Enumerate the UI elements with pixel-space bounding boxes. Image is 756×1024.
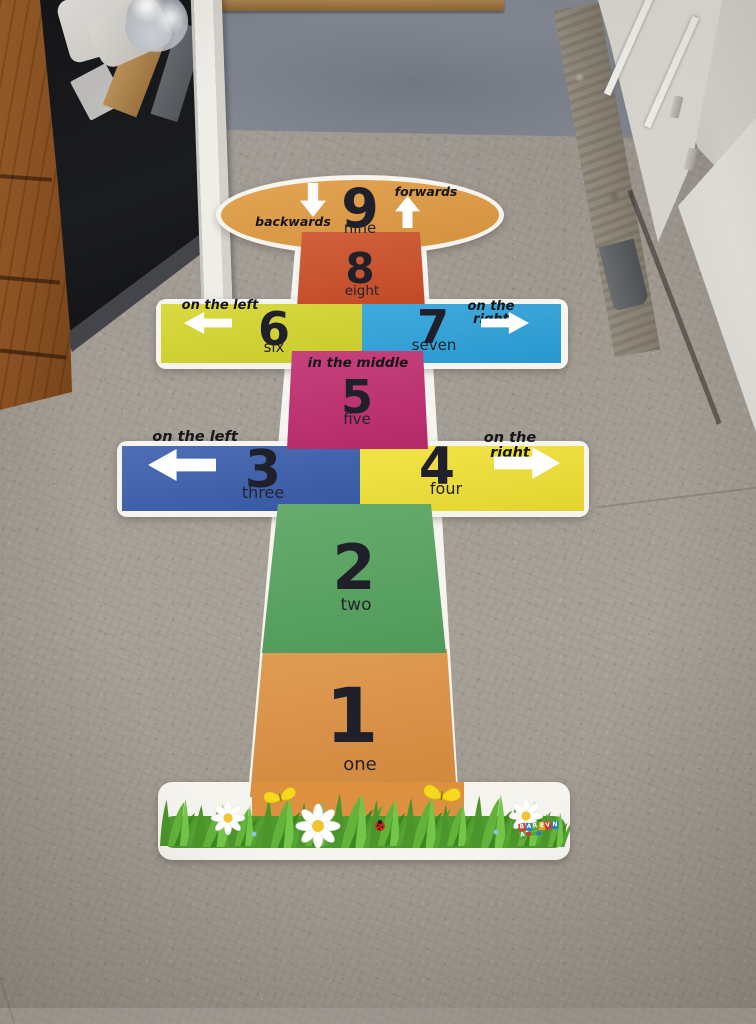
logo-letter: A [519,831,527,840]
daisy-icon [296,804,340,848]
brand-logo: B A R E V N A [518,820,565,839]
logo-letter: N [552,821,559,829]
tile-2-word: two [324,597,388,614]
wood-threshold [204,0,504,11]
daisy-icon [211,801,245,835]
tile-4-word: four [414,481,478,497]
in-the-middle-label: in the middle [304,357,412,371]
blue-flower-icon [252,832,257,837]
tile-8-word: eight [332,285,392,299]
floor-tile-seam [0,832,15,1024]
floor-tile-seam [597,486,756,509]
tile-1-number: 1 [320,678,384,754]
tile-7-word: seven [402,338,466,353]
grass-strip [158,782,570,860]
logo-mini-tile [536,831,541,835]
tile-6-word: six [246,340,302,355]
tile-3-word: three [226,485,300,501]
tile-5-word: five [327,412,387,427]
on-the-left-label: on the left [148,430,242,445]
blue-flower-icon [494,830,499,835]
tile-9-word: nine [330,221,390,236]
forwards-label: forwards [392,186,460,199]
tile-2-number: 2 [322,537,386,599]
tile-1-word: one [328,756,392,774]
backwards-label: backwards [254,216,332,229]
